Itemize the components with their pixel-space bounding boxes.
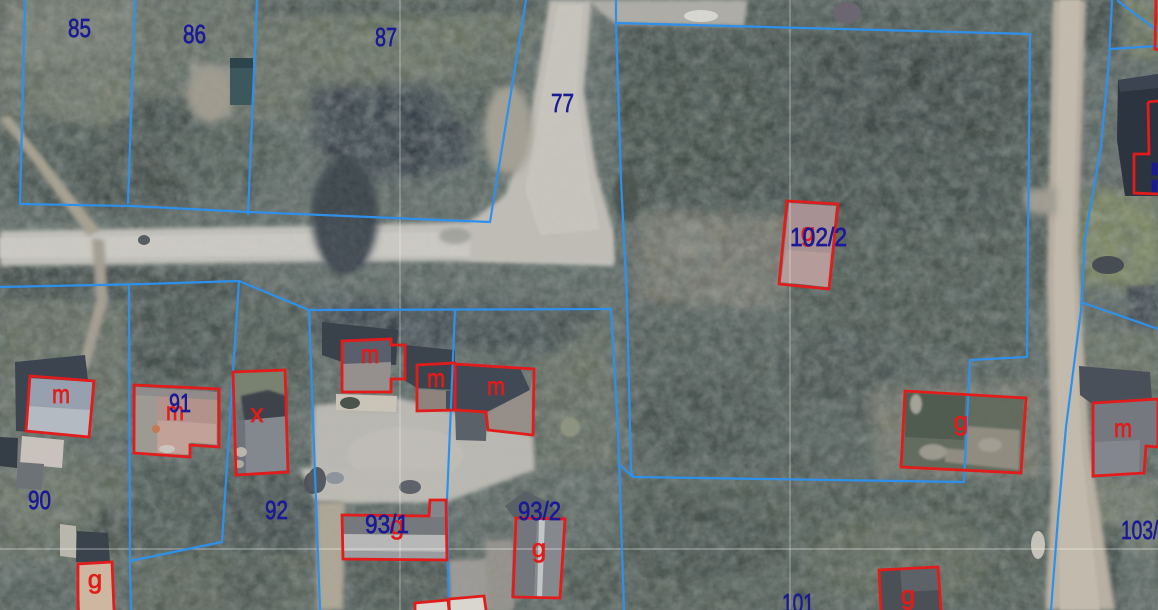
svg-text:85: 85 — [68, 13, 91, 43]
svg-text:92: 92 — [265, 495, 288, 525]
svg-text:77: 77 — [551, 88, 574, 118]
svg-text:g: g — [954, 406, 968, 436]
svg-text:103/2: 103/2 — [1121, 515, 1158, 545]
svg-text:93/1: 93/1 — [365, 509, 409, 539]
svg-text:m: m — [52, 379, 70, 409]
svg-text:g: g — [88, 564, 102, 594]
svg-text:91: 91 — [169, 388, 191, 418]
svg-text:m: m — [427, 363, 445, 393]
svg-text:102/2: 102/2 — [790, 222, 847, 252]
svg-text:g: g — [901, 580, 915, 610]
svg-text:x: x — [251, 398, 264, 428]
svg-text:93/2: 93/2 — [518, 496, 561, 526]
svg-text:m: m — [487, 371, 505, 401]
svg-text:90: 90 — [28, 485, 51, 515]
svg-text:87: 87 — [375, 22, 397, 52]
svg-text:m: m — [361, 339, 379, 369]
svg-text:g: g — [532, 533, 546, 563]
svg-text:86: 86 — [183, 19, 206, 49]
svg-text:m: m — [1114, 413, 1132, 443]
svg-text:101: 101 — [782, 588, 814, 610]
